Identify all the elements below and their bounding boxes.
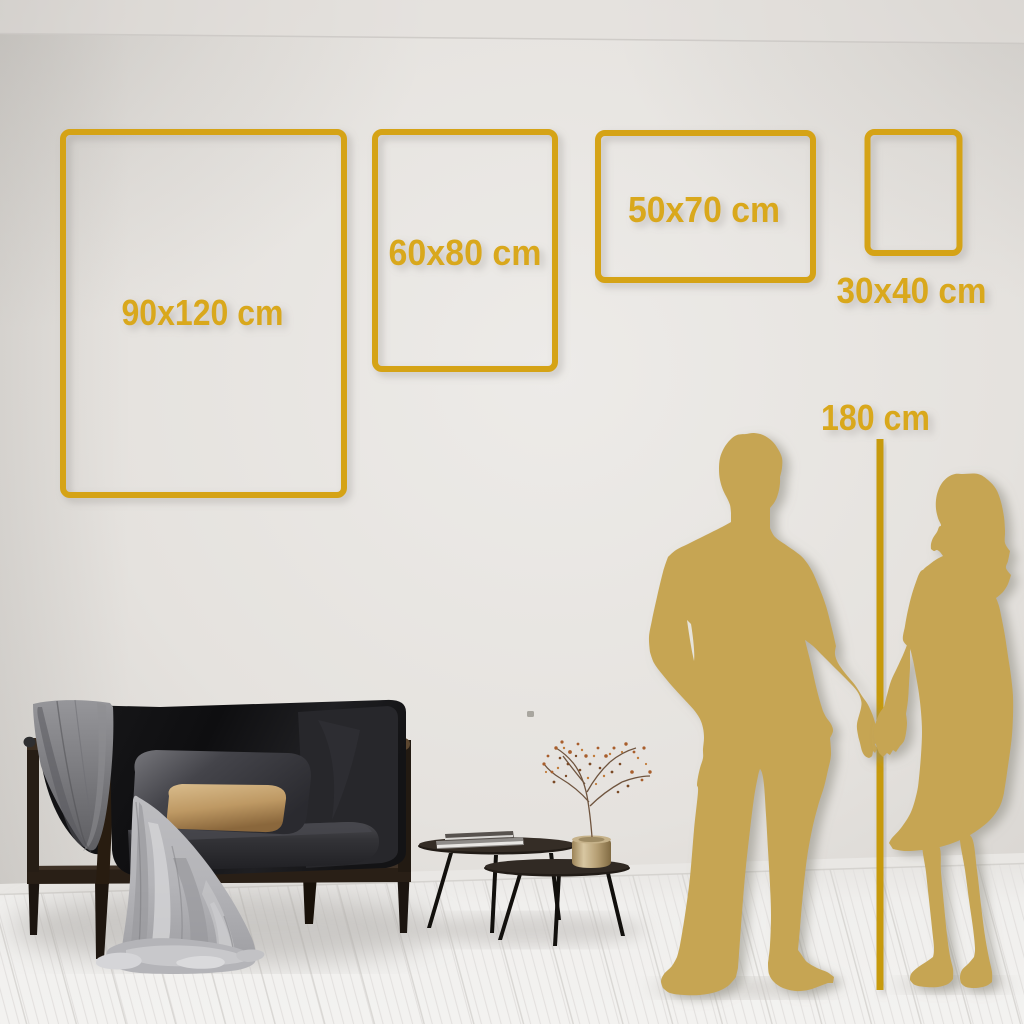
svg-text:50x70 cm: 50x70 cm xyxy=(628,189,780,230)
svg-text:180 cm: 180 cm xyxy=(821,397,930,438)
svg-text:90x120 cm: 90x120 cm xyxy=(122,292,284,333)
svg-text:60x80 cm: 60x80 cm xyxy=(389,232,542,273)
svg-text:30x40 cm: 30x40 cm xyxy=(837,270,987,311)
